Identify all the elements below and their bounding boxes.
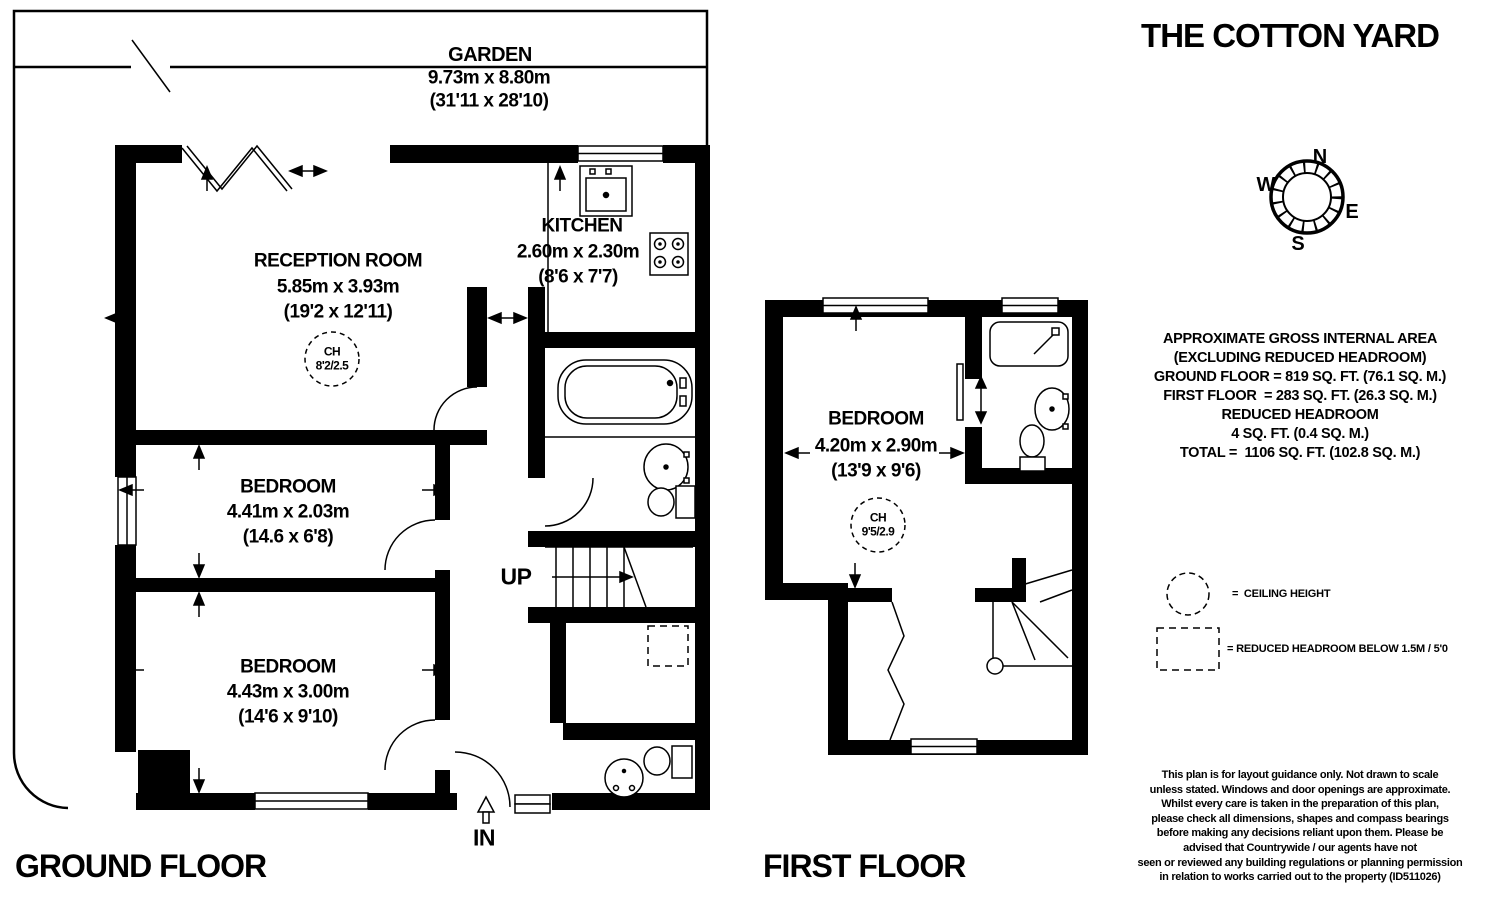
area-line: 4 SQ. FT. (0.4 SQ. M.) bbox=[1100, 425, 1500, 444]
wc-toilet-icon bbox=[644, 746, 692, 778]
garden-dim-imperial: (31'11 x 28'10) bbox=[430, 92, 549, 113]
disclaimer-line: in relation to works carried out to the … bbox=[1100, 870, 1500, 885]
reception-dim-imperial: (19'2 x 12'11) bbox=[284, 303, 393, 324]
kitchen-window-icon bbox=[578, 146, 663, 161]
kitchen-label: KITCHEN bbox=[542, 217, 623, 238]
legend-reduced-headroom-icon bbox=[1157, 628, 1219, 670]
entrance-arrow-icon bbox=[478, 797, 494, 823]
reception-door-arc bbox=[434, 387, 477, 430]
floorplan-page: THE COTTON YARD GARDEN 9.73m x 8.80m (31… bbox=[0, 0, 1500, 900]
gf-bedroom1-dim-metric: 4.41m x 2.03m bbox=[227, 503, 349, 524]
gross-internal-area-block: APPROXIMATE GROSS INTERNAL AREA (EXCLUDI… bbox=[1100, 330, 1500, 463]
ground-floor-title: GROUND FLOOR bbox=[15, 848, 266, 885]
bedroom2-door-arc bbox=[385, 720, 435, 770]
ff-walls bbox=[765, 300, 1088, 755]
ff-sink-icon bbox=[1035, 388, 1069, 430]
ff-landing-window-icon bbox=[911, 739, 977, 754]
stairs-direction-arrowhead bbox=[620, 572, 632, 582]
ff-door-panel-icon bbox=[957, 364, 963, 420]
gf-bedroom2-label: BEDROOM bbox=[240, 658, 336, 679]
garden-dim-metric: 9.73m x 8.80m bbox=[428, 69, 550, 90]
disclaimer-block: This plan is for layout guidance only. N… bbox=[1100, 768, 1500, 885]
disclaimer-line: This plan is for layout guidance only. N… bbox=[1100, 768, 1500, 783]
disclaimer-line: seen or reviewed any building regulation… bbox=[1100, 856, 1500, 871]
area-line: (EXCLUDING REDUCED HEADROOM) bbox=[1100, 349, 1500, 368]
disclaimer-line: please check all dimensions, shapes and … bbox=[1100, 812, 1500, 827]
ff-bedroom-ch-label: CH bbox=[870, 511, 886, 524]
hob-icon bbox=[650, 233, 688, 275]
disclaimer-line: Whilst every care is taken in the prepar… bbox=[1100, 797, 1500, 812]
gf-bedroom1-dim-imperial: (14.6 x 6'8) bbox=[243, 528, 333, 549]
wc-sink-icon bbox=[605, 759, 643, 797]
shower-tray-icon bbox=[990, 322, 1068, 366]
ff-bedroom-window-icon bbox=[823, 298, 928, 313]
kitchen-dim-metric: 2.60m x 2.30m bbox=[517, 243, 639, 264]
bathroom-sink-icon bbox=[644, 444, 689, 490]
first-floor-title: FIRST FLOOR bbox=[763, 848, 965, 885]
gf-bedroom2-dim-metric: 4.43m x 3.00m bbox=[227, 683, 349, 704]
gf-bedroom1-label: BEDROOM bbox=[240, 478, 336, 499]
gf-reduced-headroom-box bbox=[648, 626, 688, 666]
disclaimer-line: before making any decisions reliant upon… bbox=[1100, 826, 1500, 841]
disclaimer-line: advised that Countrywide / our agents ha… bbox=[1100, 841, 1500, 856]
legend-shapes bbox=[1157, 573, 1219, 670]
bedroom1-door-arc bbox=[385, 520, 435, 570]
garden-label: GARDEN bbox=[448, 44, 532, 66]
bath-tub-icon bbox=[558, 360, 692, 424]
ff-sloped-ceiling-line bbox=[888, 602, 904, 740]
entrance-threshold-icon bbox=[515, 795, 550, 813]
kitchen-sink-icon bbox=[580, 166, 632, 216]
entrance-in-label: IN bbox=[473, 825, 495, 850]
bifold-door-icon bbox=[182, 146, 292, 191]
garden-break-mark bbox=[132, 40, 170, 92]
area-line: FIRST FLOOR = 283 SQ. FT. (26.3 SQ. M.) bbox=[1100, 387, 1500, 406]
bathroom-door-arc bbox=[545, 478, 593, 526]
compass-west-label: W bbox=[1257, 174, 1276, 196]
bathroom-toilet-icon bbox=[648, 486, 695, 518]
compass-east-label: E bbox=[1345, 201, 1358, 223]
kitchen-dim-imperial: (8'6 x 7'7) bbox=[538, 268, 618, 289]
ff-bedroom-dim-metric: 4.20m x 2.90m bbox=[815, 437, 937, 458]
ff-stairs bbox=[987, 570, 1072, 674]
ff-toilet-icon bbox=[1020, 425, 1045, 471]
gf-wc-fixtures bbox=[605, 746, 692, 797]
gf-stairs bbox=[545, 547, 693, 607]
gf-bathroom-fixtures bbox=[545, 360, 695, 518]
legend-reduced-headroom-text: = REDUCED HEADROOM BELOW 1.5M / 5'0 bbox=[1227, 643, 1448, 655]
legend-ceiling-height-text: = CEILING HEIGHT bbox=[1232, 588, 1330, 600]
ff-shower-window-icon bbox=[1002, 298, 1058, 313]
legend-ceiling-height-icon bbox=[1167, 573, 1209, 615]
compass-rose-icon bbox=[1271, 161, 1343, 233]
area-line: APPROXIMATE GROSS INTERNAL AREA bbox=[1100, 330, 1500, 349]
reception-ch-label: CH bbox=[324, 345, 340, 358]
gf-bedroom2-dim-imperial: (14'6 x 9'10) bbox=[238, 708, 338, 729]
area-line: REDUCED HEADROOM bbox=[1100, 406, 1500, 425]
stair-newel-icon bbox=[987, 658, 1003, 674]
area-line: GROUND FLOOR = 819 SQ. FT. (76.1 SQ. M.) bbox=[1100, 368, 1500, 387]
bedroom2-window-icon bbox=[255, 793, 368, 809]
front-door-arc bbox=[455, 752, 510, 807]
area-line: TOTAL = 1106 SQ. FT. (102.8 SQ. M.) bbox=[1100, 444, 1500, 463]
ff-bedroom-label: BEDROOM bbox=[828, 410, 924, 431]
stairs-up-label: UP bbox=[501, 564, 532, 589]
disclaimer-line: unless stated. Windows and door openings… bbox=[1100, 783, 1500, 798]
ff-bedroom-ch-value: 9'5/2.9 bbox=[862, 525, 895, 538]
reception-label: RECEPTION ROOM bbox=[254, 252, 422, 273]
page-title: THE COTTON YARD bbox=[1141, 18, 1439, 54]
reception-ch-value: 8'2/2.5 bbox=[316, 359, 349, 372]
compass-south-label: S bbox=[1291, 233, 1304, 255]
reception-dim-metric: 5.85m x 3.93m bbox=[277, 278, 399, 299]
compass-north-label: N bbox=[1313, 146, 1327, 168]
ff-bedroom-dim-imperial: (13'9 x 9'6) bbox=[831, 462, 921, 483]
